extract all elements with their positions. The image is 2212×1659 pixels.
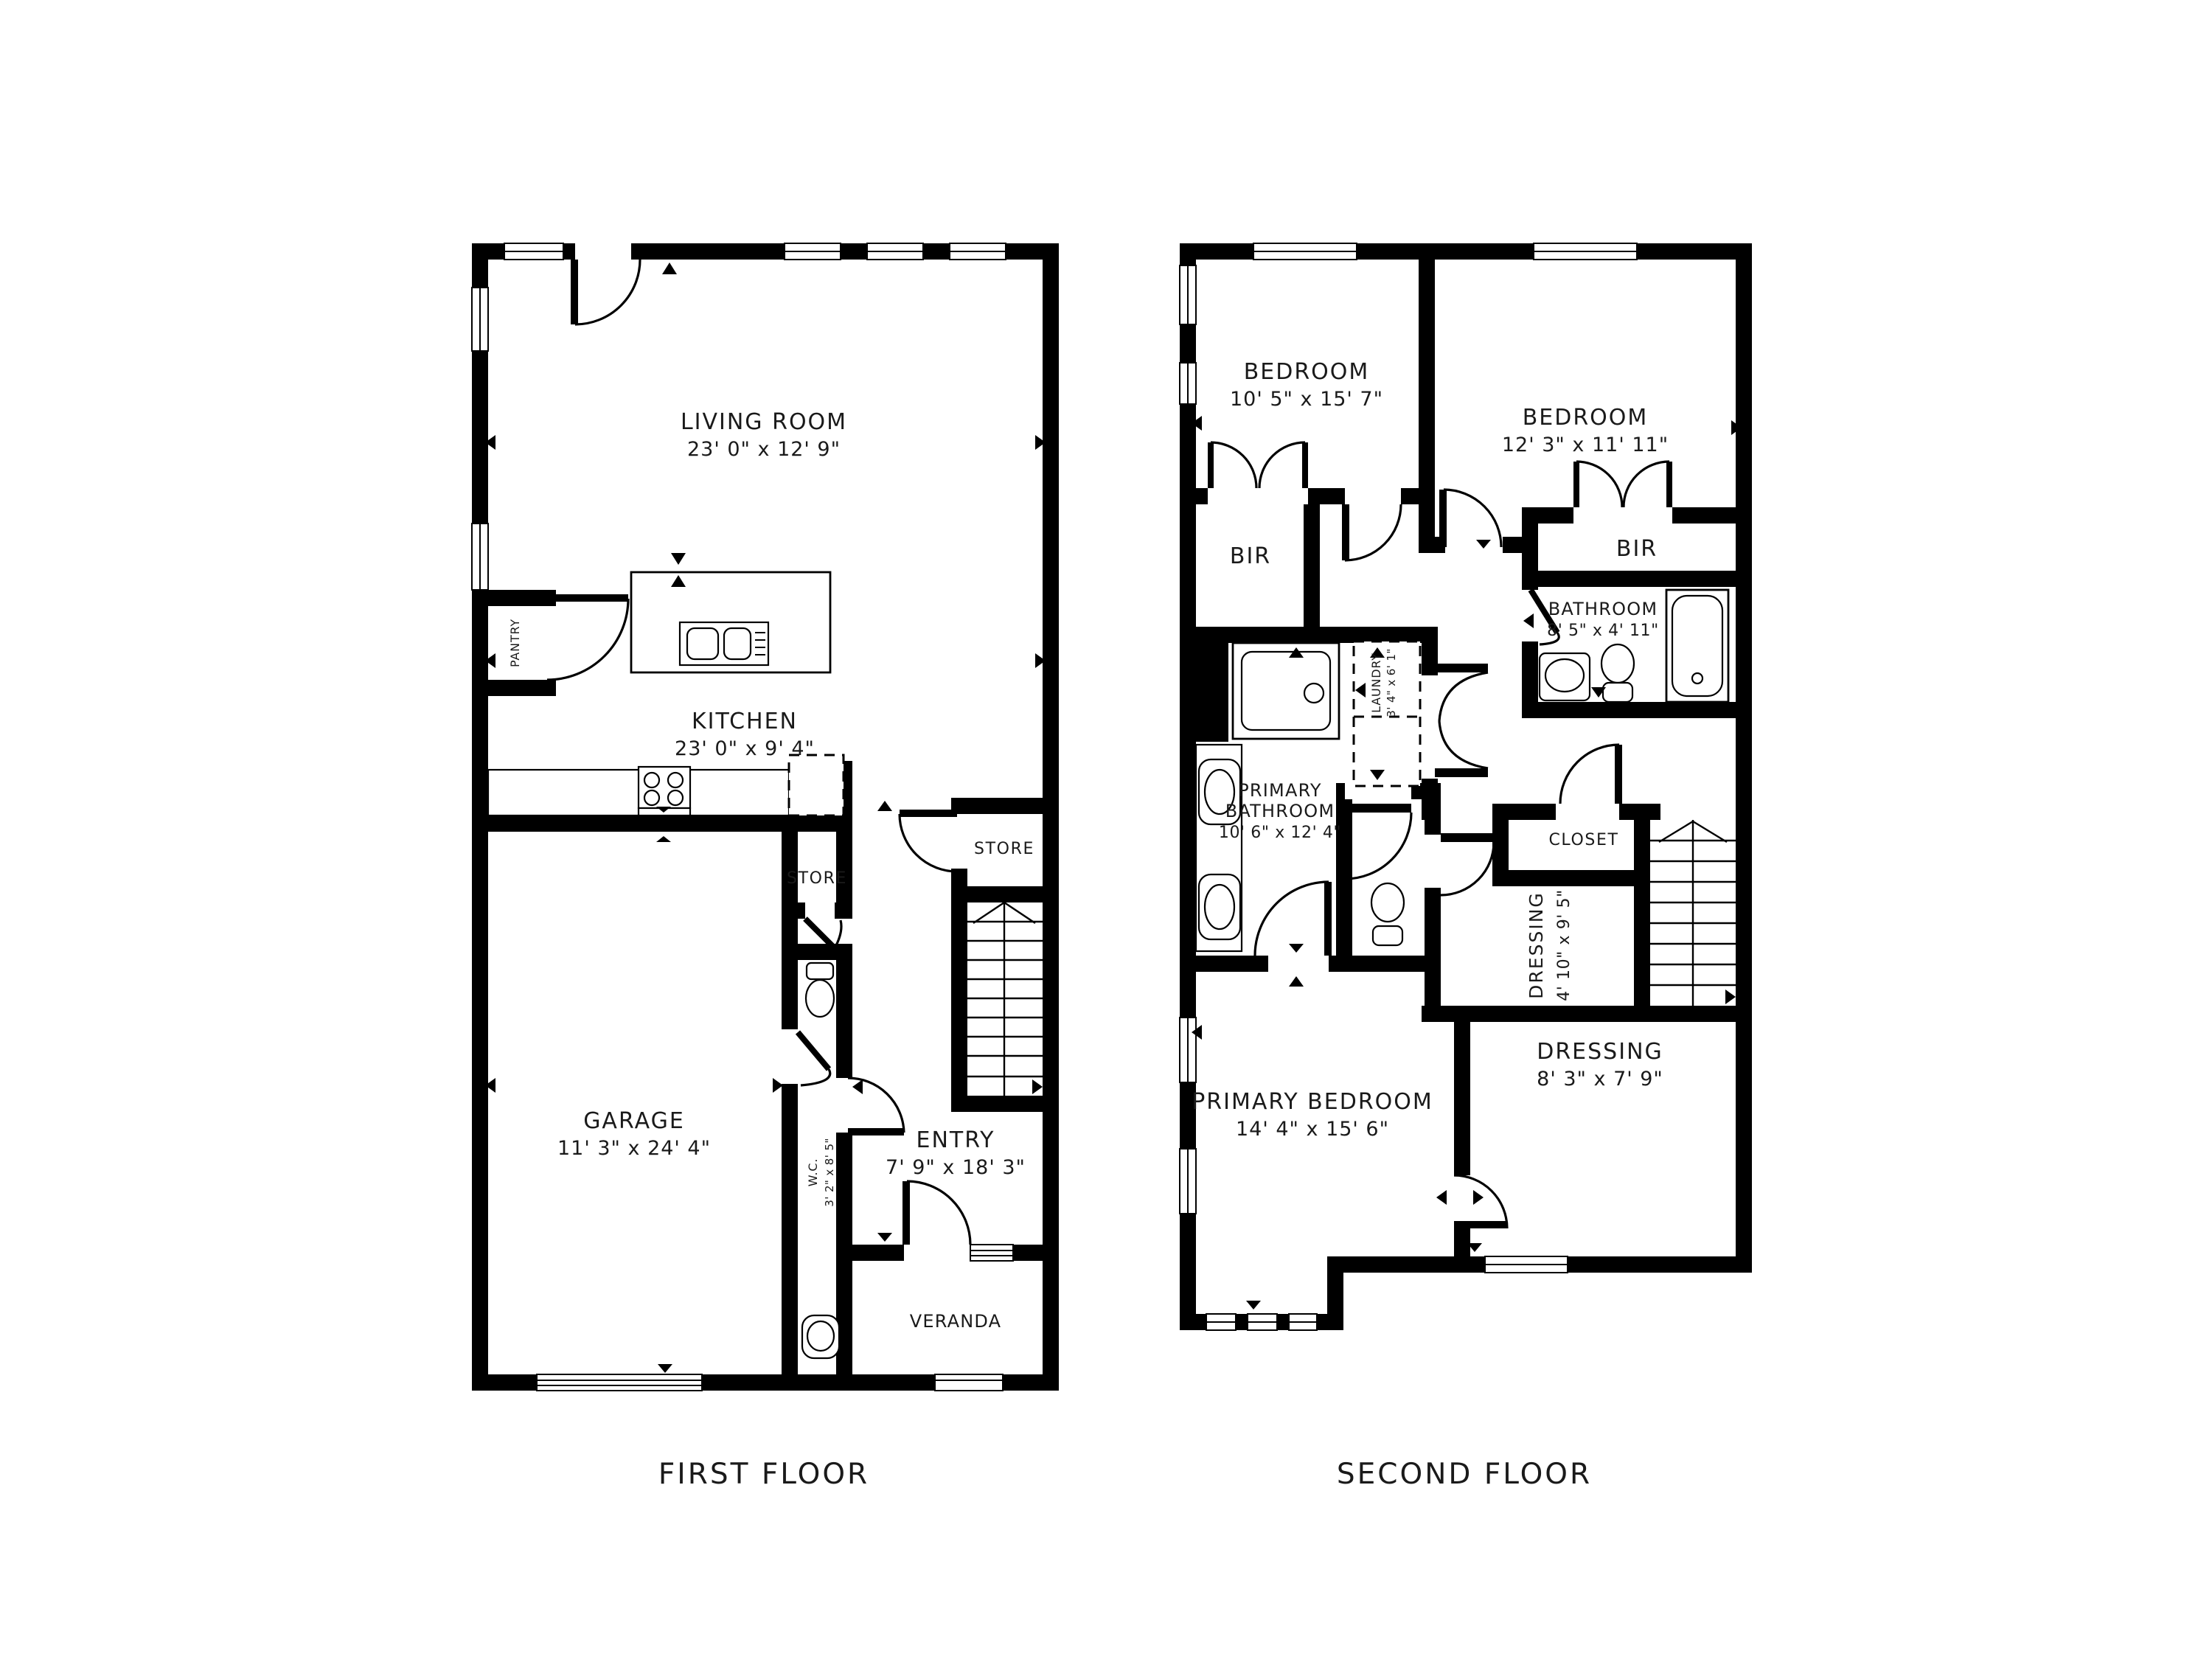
- bathroom-label: BATHROOM: [1548, 599, 1658, 619]
- vanity-two-sinks: [1196, 745, 1242, 951]
- bedroom-left-dims: 10' 5" x 15' 7": [1230, 388, 1383, 411]
- shower-drain: [1304, 684, 1324, 703]
- toilet-room-door-leaf: [1345, 804, 1411, 813]
- store-outer-door-leaf: [900, 810, 957, 817]
- toilet-tank: [1603, 683, 1632, 702]
- laundry-dims: 3' 4" x 6' 1": [1385, 648, 1398, 717]
- entry-dims: 7' 9" x 18' 3": [886, 1156, 1026, 1179]
- primary-bathroom-door-leaf: [1324, 882, 1332, 956]
- toilet-room-east-door-leaf: [1441, 833, 1494, 842]
- bedroom-right-door-leaf: [1439, 490, 1447, 547]
- bedroom-right-dims: 12' 3" x 11' 11": [1502, 434, 1669, 456]
- second-floor-plan: BEDROOM 10' 5" x 15' 7" BEDROOM 12' 3" x…: [1180, 243, 1752, 1491]
- dressing-large-label: DRESSING: [1537, 1039, 1663, 1065]
- primary-bedroom-label: PRIMARY BEDROOM: [1192, 1089, 1433, 1115]
- floor-plan-drawing: LIVING ROOM 23' 0" x 12' 9" KITCHEN 23' …: [0, 0, 2212, 1659]
- entry-label: ENTRY: [917, 1127, 995, 1153]
- veranda-label: VERANDA: [910, 1311, 1002, 1332]
- toilet-room-fixtures: [1371, 883, 1404, 945]
- kitchen-counter: [488, 755, 844, 815]
- bir-right-door-leaf: [1573, 462, 1579, 507]
- solid-void-block: [1196, 627, 1228, 742]
- living-room-label: LIVING ROOM: [681, 409, 847, 435]
- store-outer-label: STORE: [974, 840, 1034, 858]
- hall-double-door-leaf: [1435, 768, 1488, 777]
- garage-dims: 11' 3" x 24' 4": [557, 1137, 711, 1160]
- bedroom-left-door-leaf: [1342, 504, 1349, 560]
- toilet-icon: [1371, 883, 1404, 922]
- first-floor-title: FIRST FLOOR: [658, 1458, 869, 1491]
- entry-threshold: [970, 1245, 1013, 1261]
- bedroom-right-label: BEDROOM: [1523, 405, 1649, 431]
- entry-door-leaf: [902, 1181, 910, 1245]
- bir-left-door-leaf: [1302, 442, 1308, 488]
- veranda-opening: [935, 1374, 1003, 1391]
- sink-basin: [724, 628, 751, 659]
- first-floor-stairs: [967, 902, 1043, 1096]
- closet-door-leaf: [1615, 745, 1622, 804]
- primary-bedroom-dims: 14' 4" x 15' 6": [1236, 1118, 1389, 1141]
- living-room-dims: 23' 0" x 12' 9": [687, 438, 841, 461]
- wc-dims: 3' 2" x 8' 5": [823, 1138, 836, 1206]
- bir-left-door-leaf: [1208, 442, 1214, 488]
- wc-label: W.C.: [806, 1158, 820, 1187]
- refrigerator-icon: [789, 755, 844, 815]
- dressing-small-dims: 4' 10" x 9' 5": [1555, 889, 1573, 1001]
- store-inner-label: STORE: [787, 869, 847, 888]
- bir-right-door-leaf: [1666, 462, 1672, 507]
- primary-bathroom-dims: 10' 6" x 12' 4": [1219, 824, 1341, 842]
- bedroom-left-label: BEDROOM: [1244, 359, 1370, 385]
- pantry-door-leaf: [547, 594, 628, 602]
- closet-label: CLOSET: [1548, 831, 1618, 849]
- second-floor-title: SECOND FLOOR: [1337, 1458, 1592, 1491]
- second-floor-stairs: [1650, 820, 1736, 1006]
- toilet-icon: [806, 980, 834, 1017]
- garage-door-band: [537, 1374, 702, 1391]
- bir-right-label: BIR: [1616, 536, 1658, 562]
- bir-left-label: BIR: [1230, 543, 1271, 569]
- laundry-label: LAUNDRY: [1369, 653, 1383, 713]
- wc-door-leaf: [848, 1128, 904, 1135]
- dressing-small-label: DRESSING: [1526, 891, 1547, 999]
- hall-double-door-leaf: [1435, 664, 1488, 672]
- toilet-icon: [1601, 644, 1634, 683]
- shower-unit: [1233, 643, 1339, 739]
- primary-bathroom-label-line2: BATHROOM: [1225, 801, 1335, 821]
- toilet-tank: [807, 963, 833, 979]
- primary-bathroom-label-line1: PRIMARY: [1238, 780, 1322, 801]
- sink-basin: [687, 628, 718, 659]
- dressing-door-leaf: [1454, 1221, 1507, 1228]
- bathroom-dims: 8' 5" x 4' 11": [1547, 622, 1659, 640]
- first-floor-plan: LIVING ROOM 23' 0" x 12' 9" KITCHEN 23' …: [472, 243, 1059, 1491]
- kitchen-dims: 23' 0" x 9' 4": [675, 737, 815, 760]
- front-door-leaf: [571, 260, 578, 324]
- floor-plan-page: LIVING ROOM 23' 0" x 12' 9" KITCHEN 23' …: [0, 0, 2212, 1659]
- dressing-large-dims: 8' 3" x 7' 9": [1537, 1068, 1663, 1091]
- kitchen-label: KITCHEN: [692, 709, 798, 734]
- garage-door-leaf: [798, 1032, 829, 1069]
- pantry-label: PANTRY: [508, 619, 522, 667]
- kitchen-island: [631, 572, 830, 672]
- toilet-tank: [1373, 926, 1402, 945]
- garage-label: GARAGE: [583, 1108, 685, 1134]
